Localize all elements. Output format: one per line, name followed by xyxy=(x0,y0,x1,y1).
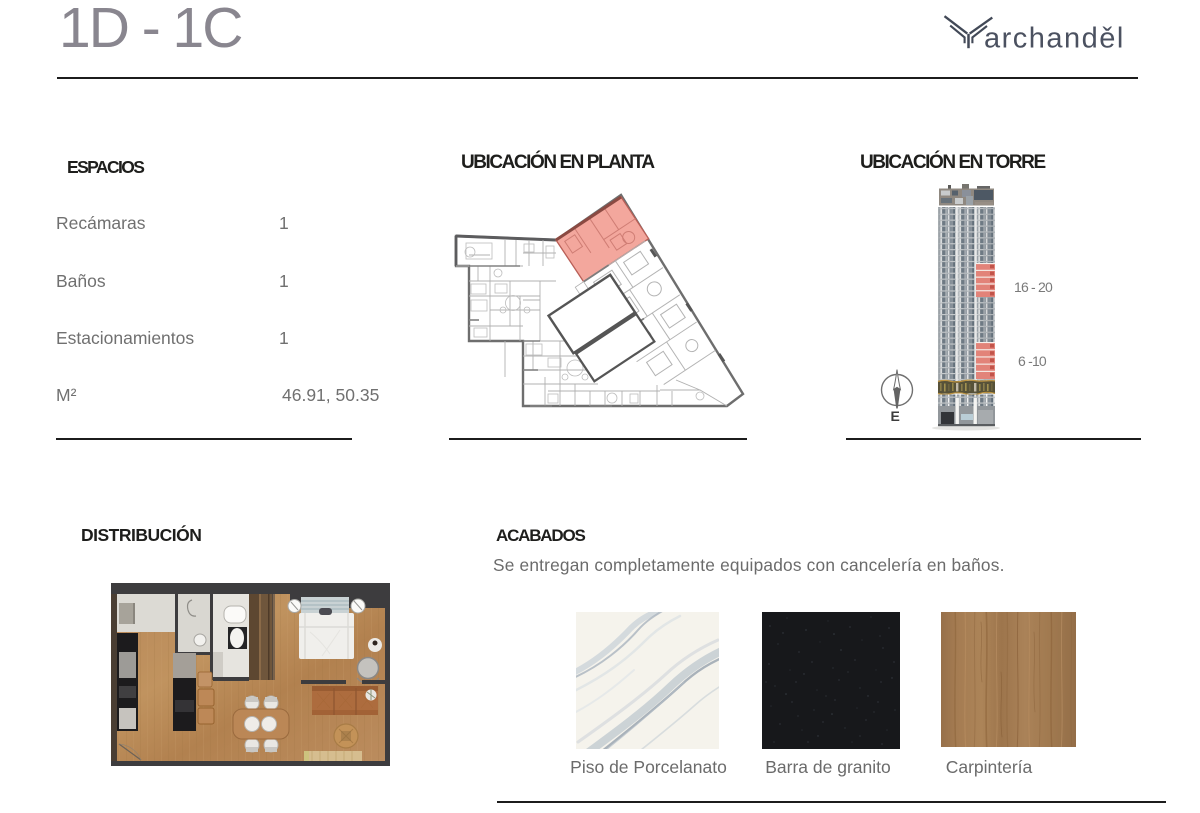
svg-text:archanděl: archanděl xyxy=(984,23,1125,55)
svg-text:E: E xyxy=(891,408,900,424)
